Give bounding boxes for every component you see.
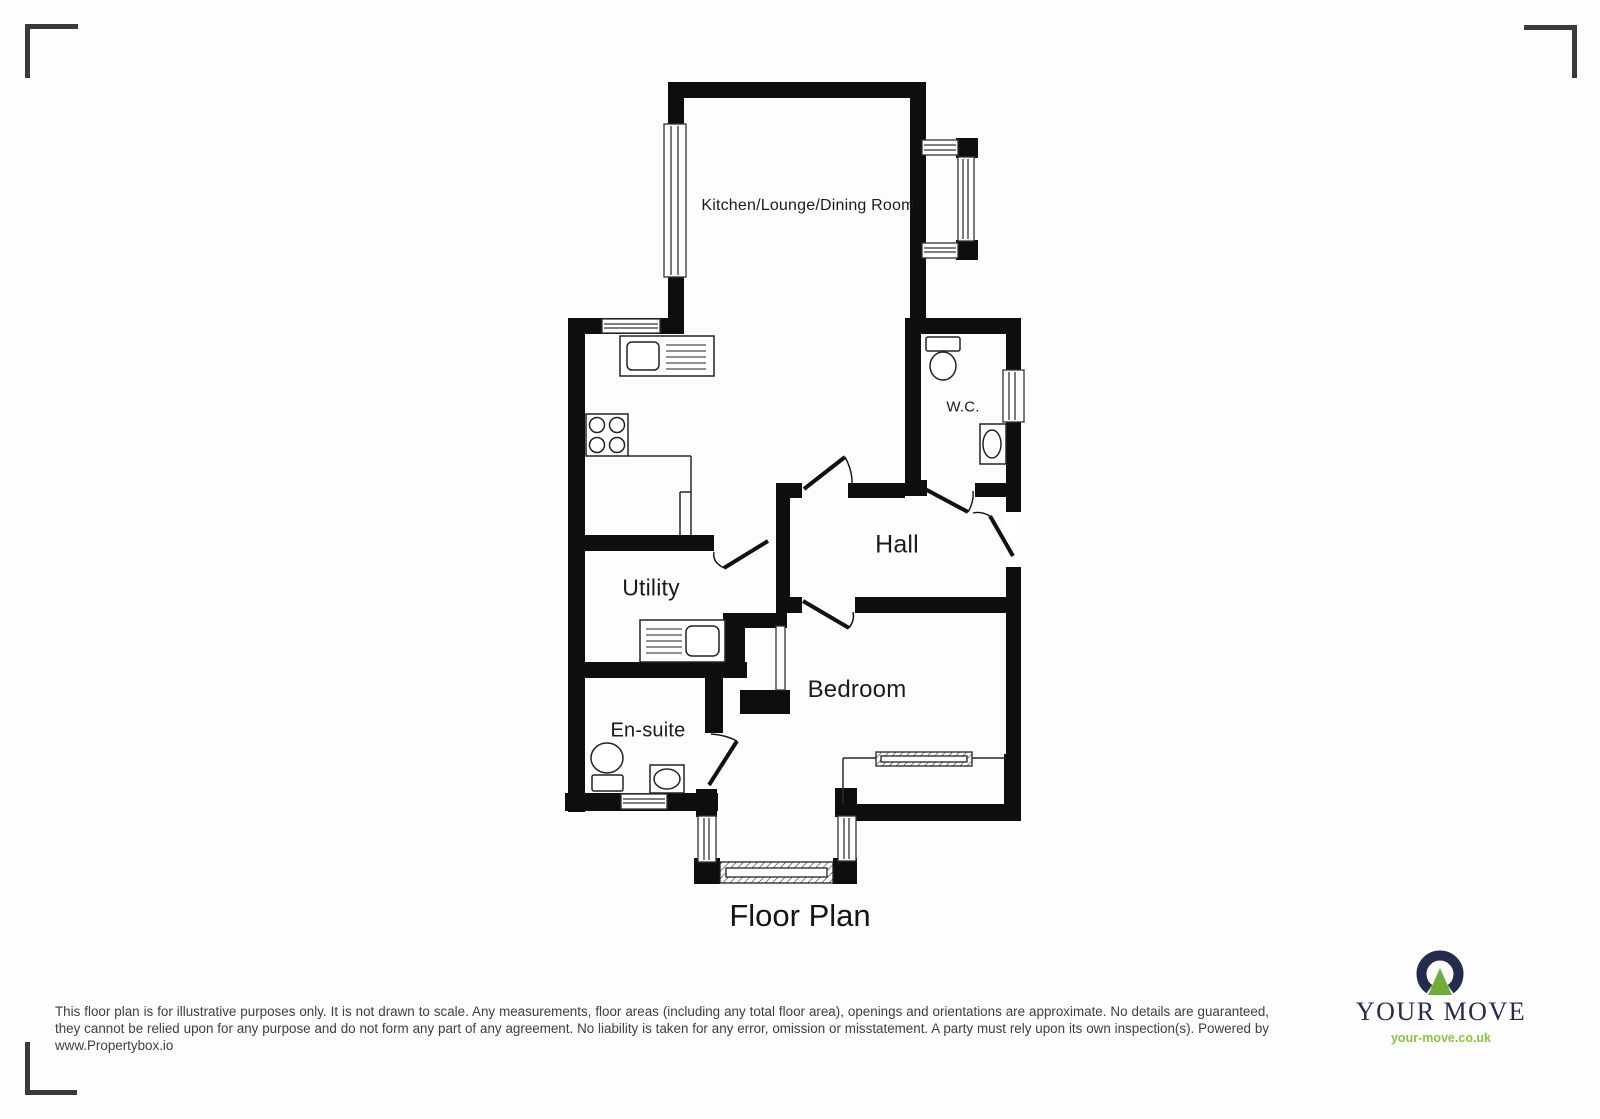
room-label-hall: Hall	[875, 531, 919, 560]
corner-mark-top-right	[1524, 28, 1575, 79]
your-move-logo-icon	[1422, 956, 1459, 995]
wc-toilet-icon	[926, 337, 960, 380]
window-kitchen-top-icon	[602, 319, 660, 333]
utility-sink-icon	[640, 620, 725, 662]
glazed-screen-icon	[776, 626, 785, 690]
ensuite-toilet-icon	[591, 743, 623, 791]
window-porch-right-icon	[838, 816, 856, 861]
room-label-kitchen: Kitchen/Lounge/Dining Room	[701, 197, 914, 215]
front-door-opening	[1004, 512, 1023, 567]
kitchen-sink-icon	[620, 336, 714, 376]
disclaimer-text: This floor plan is for illustrative purp…	[55, 1003, 1269, 1054]
door-wc-icon	[925, 489, 973, 512]
ensuite-washbasin-icon	[650, 765, 684, 793]
floor-plan-drawing	[0, 0, 1600, 1119]
windows	[602, 124, 1024, 862]
logo-website-text: your-move.co.uk	[1391, 1031, 1491, 1045]
door-utility-icon	[714, 541, 768, 568]
window-ensuite-icon	[621, 794, 667, 809]
room-label-utility: Utility	[622, 575, 680, 602]
floor-plan-page: Kitchen/Lounge/Dining Room W.C. Hall Uti…	[0, 0, 1600, 1119]
hob-icon	[586, 414, 628, 456]
room-label-wc: W.C.	[946, 399, 979, 416]
window-kitchen-left-icon	[664, 124, 686, 277]
page-title: Floor Plan	[729, 898, 870, 934]
door-ensuite-icon	[709, 734, 737, 785]
room-label-bedroom: Bedroom	[808, 676, 907, 704]
entrance-door-band-icon	[720, 862, 833, 883]
corner-mark-top-left	[28, 27, 79, 79]
counter-lines	[628, 456, 691, 535]
window-porch-left-icon	[698, 816, 716, 862]
logo-brand-text: YOUR MOVE	[1356, 997, 1526, 1027]
bedroom-bay-window-icon	[876, 752, 972, 766]
window-wc-icon	[1003, 370, 1024, 422]
room-label-ensuite: En-suite	[611, 720, 686, 743]
wc-washbasin-icon	[980, 424, 1006, 464]
door-bedroom-icon	[803, 601, 854, 628]
bay-window-icon	[922, 140, 974, 258]
door-kitchen-hall-icon	[804, 457, 852, 496]
